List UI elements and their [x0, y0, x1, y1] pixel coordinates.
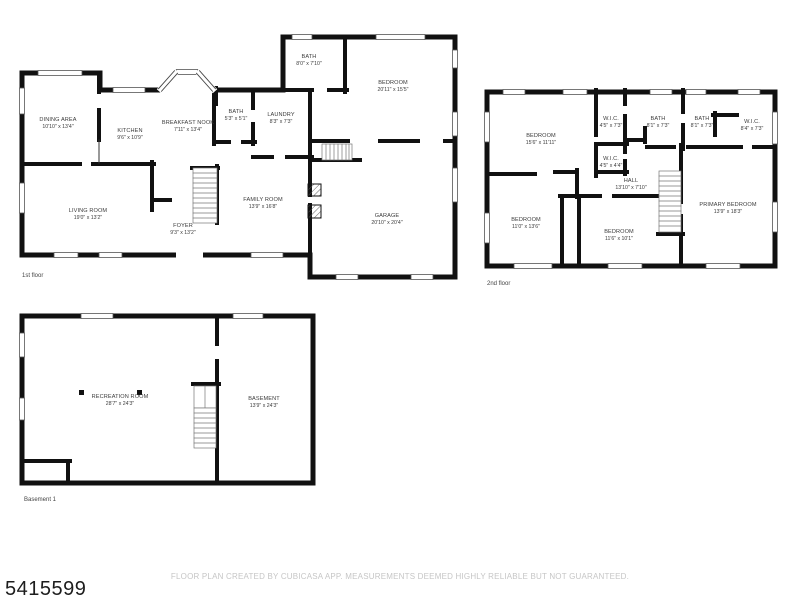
- room-label-primary-bedroom: PRIMARY BEDROOM13'9" x 18'3": [699, 201, 756, 216]
- room-label-bedroom-2f-left: BEDROOM15'6" x 11'11": [526, 132, 557, 147]
- room-label-bath-2f-2: BATH8'1" x 7'3": [691, 115, 714, 130]
- room-label-basement: BASEMENT13'9" x 24'3": [248, 395, 280, 410]
- room-label-living-room: LIVING ROOM19'0" x 13'2": [69, 207, 107, 222]
- first-floor-plan: [20, 35, 458, 280]
- room-label-wic-2: W.I.C.4'5" x 4'4": [600, 155, 623, 170]
- room-label-bath-1f-small: BATH5'3" x 5'1": [225, 108, 248, 123]
- room-label-garage: GARAGE20'10" x 20'4": [371, 212, 402, 227]
- room-label-wic-1: W.I.C.4'5" x 7'3": [600, 115, 623, 130]
- floor-label-basement-1: Basement 1: [24, 497, 56, 503]
- floor-label-2nd-floor: 2nd floor: [487, 281, 510, 287]
- room-label-bath-1f-top: BATH8'0" x 7'10": [296, 53, 322, 68]
- room-label-bedroom-2f-middle: BEDROOM11'6" x 10'1": [604, 228, 634, 243]
- floor-label-1st-floor: 1st floor: [22, 273, 43, 279]
- room-label-family-room: FAMILY ROOM13'9" x 16'8": [243, 196, 282, 211]
- disclaimer-text: FLOOR PLAN CREATED BY CUBICASA APP. MEAS…: [0, 572, 800, 581]
- room-label-bedroom-2f-bottom: BEDROOM11'0" x 13'6": [511, 216, 541, 231]
- room-label-bedroom-1f: BEDROOM20'11" x 15'5": [378, 79, 409, 94]
- room-label-wic-3: W.I.C.8'4" x 7'3": [741, 118, 764, 133]
- room-label-recreation-room: RECREATION ROOM28'7" x 24'3": [92, 393, 149, 408]
- room-label-breakfast-nook: BREAKFAST NOOK7'11" x 13'4": [162, 119, 214, 134]
- foyer-staircase: [193, 168, 217, 223]
- room-label-foyer: FOYER9'3" x 13'2": [170, 222, 196, 237]
- second-floor-staircase: [659, 171, 681, 232]
- room-label-hall: HALL13'10" x 7'10": [615, 177, 646, 192]
- basement-staircase: [194, 386, 216, 448]
- room-label-kitchen: KITCHEN9'6" x 10'9": [117, 127, 143, 142]
- listing-id: 5415599: [5, 578, 86, 600]
- garage-staircase: [322, 144, 352, 160]
- room-label-bath-2f-1: BATH8'1" x 7'3": [647, 115, 670, 130]
- first-floor-exterior-walls: [22, 37, 455, 277]
- floor-plan-page: DINING AREA10'10" x 13'4" KITCHEN9'6" x …: [0, 0, 800, 600]
- room-label-laundry: LAUNDRY8'3" x 7'3": [267, 111, 294, 126]
- room-label-dining-area: DINING AREA10'10" x 13'4": [39, 116, 76, 131]
